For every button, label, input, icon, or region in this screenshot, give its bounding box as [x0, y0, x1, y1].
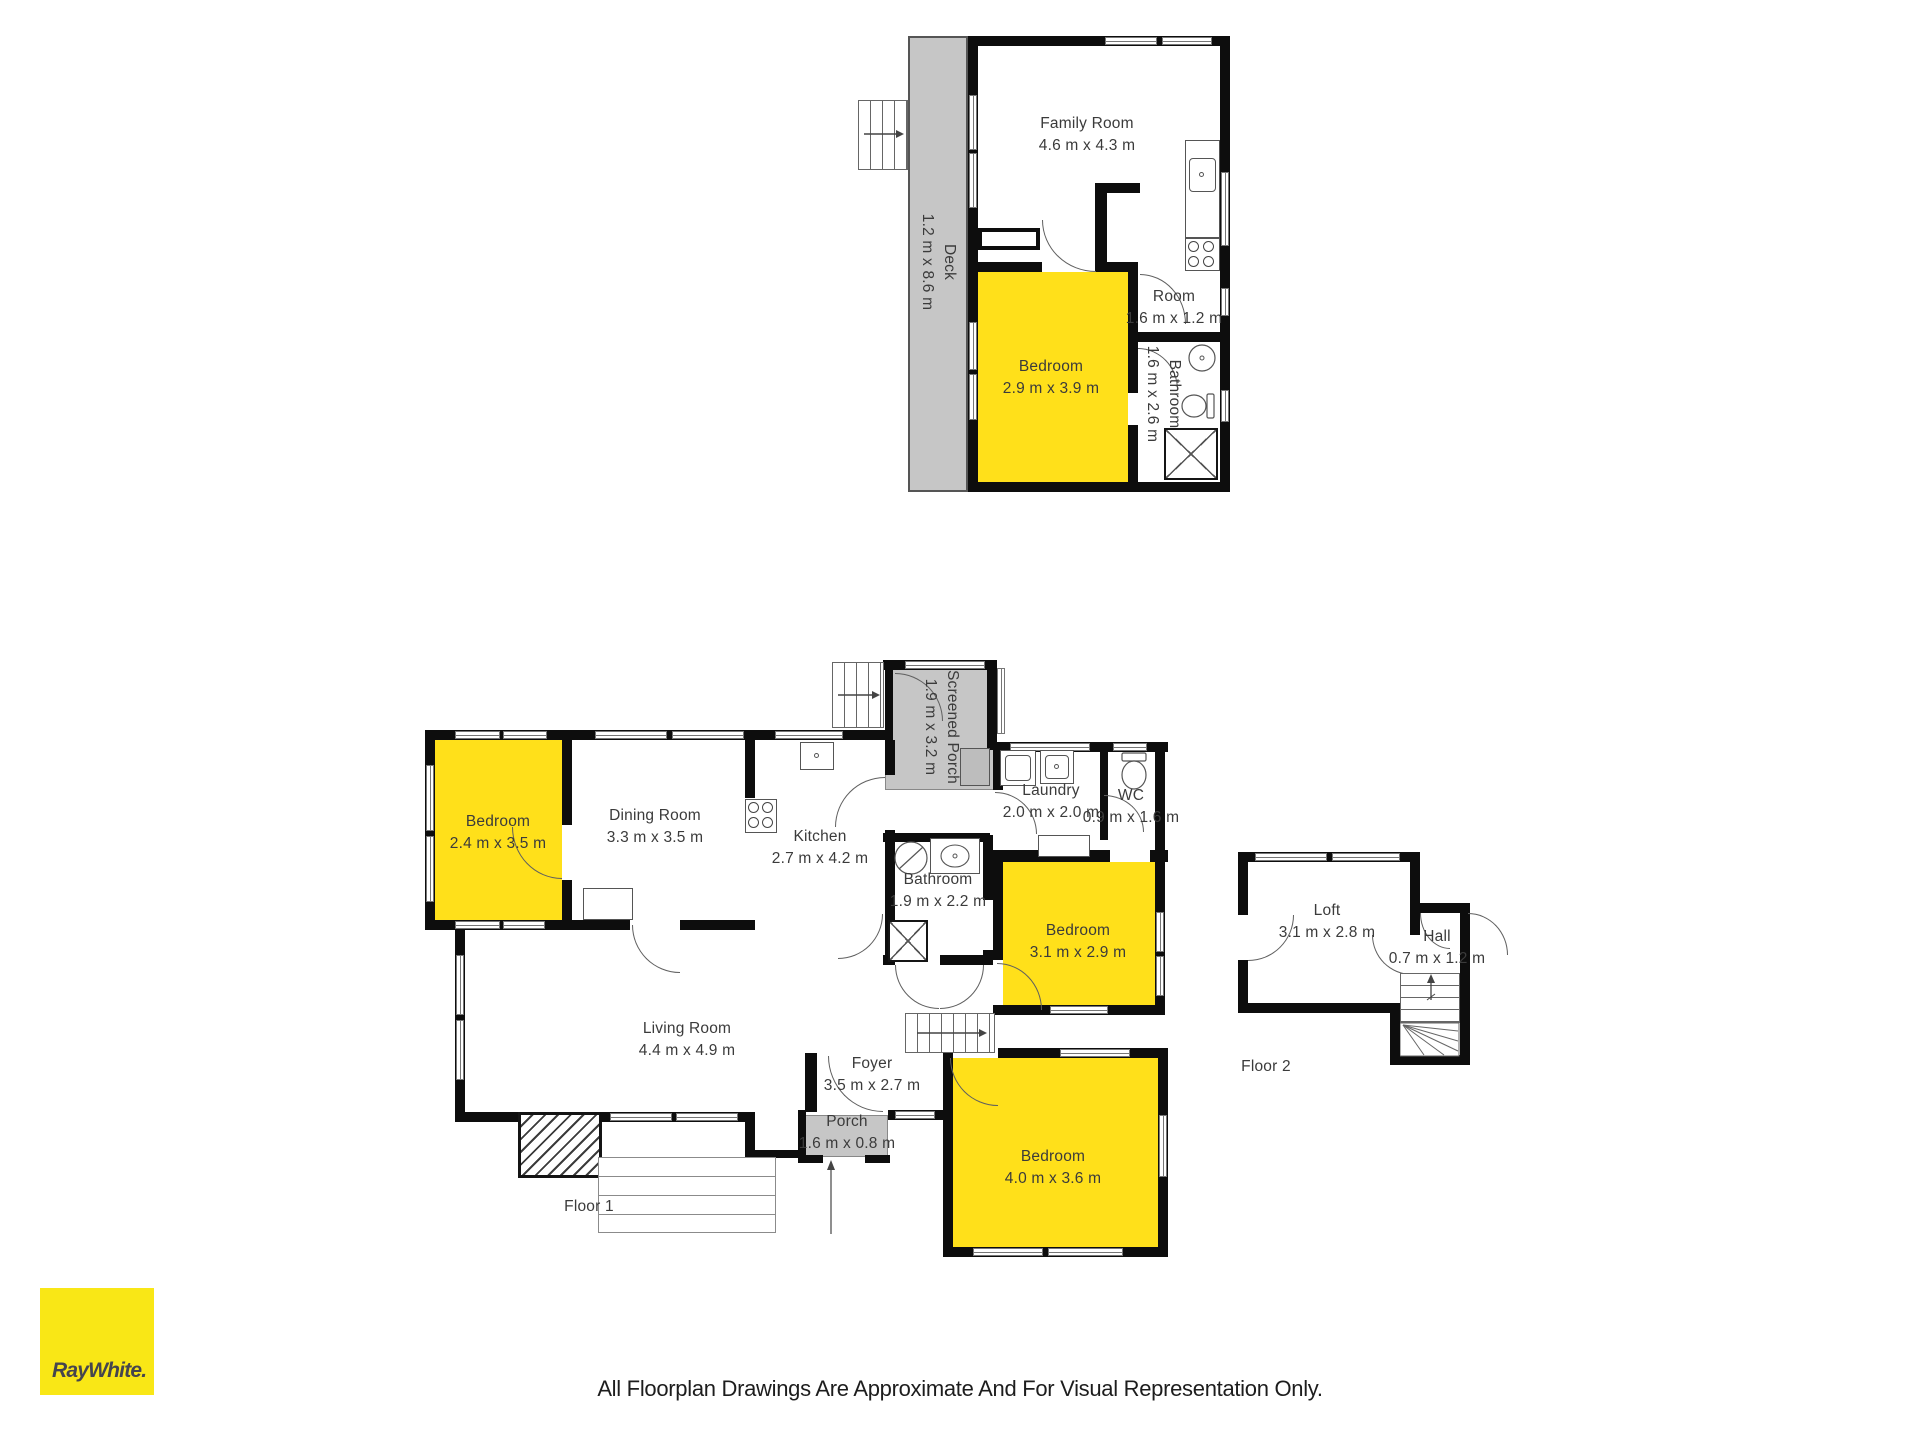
- room-name: Hall: [1389, 926, 1486, 948]
- room-dims: 3.1 m x 2.8 m: [1279, 922, 1376, 944]
- floor2-plan: Loft 3.1 m x 2.8 m Hall 0.7 m x 1.2 m Fl…: [0, 0, 1920, 1440]
- floor2-label: Floor 2: [1241, 1058, 1291, 1076]
- wall: [1238, 852, 1248, 915]
- wall: [1410, 852, 1420, 935]
- stairs-up-arrow-icon: [1424, 973, 1438, 1003]
- disclaimer-text: All Floorplan Drawings Are Approximate A…: [0, 1376, 1920, 1402]
- wall: [1238, 1003, 1420, 1013]
- room-dims: 0.7 m x 1.2 m: [1389, 948, 1486, 970]
- room-name: Loft: [1279, 900, 1376, 922]
- winder-stairs-icon: [1400, 1023, 1460, 1057]
- window: [1332, 853, 1400, 861]
- window: [1255, 853, 1327, 861]
- room-label-loft: Loft 3.1 m x 2.8 m: [1279, 900, 1376, 944]
- room-label-hall: Hall 0.7 m x 1.2 m: [1389, 926, 1486, 970]
